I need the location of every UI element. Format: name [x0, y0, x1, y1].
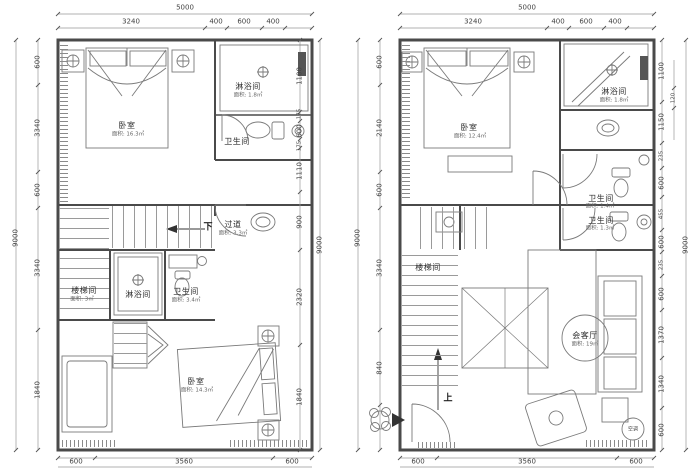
left-plan-bottom-window-1 — [62, 440, 116, 447]
dim-right-segment: 600 — [659, 287, 666, 300]
right-plan-living-furniture — [524, 250, 644, 447]
dim-top-segment: 3240 — [122, 19, 140, 26]
room-label-stairwell: 楼梯间 — [71, 287, 97, 295]
dim-right-segment: 235 — [659, 151, 665, 162]
room-label-shower-top: 淋浴间 — [235, 83, 261, 91]
room-area-bath-upper: 面积: 1.4㎡ — [586, 204, 615, 210]
room-area-shower: 面积: 1.8㎡ — [600, 98, 629, 104]
room-label-bath-upper: 卫生间 — [588, 195, 614, 203]
dim-top-segment: 3240 — [464, 19, 482, 26]
dim-left-segment: 840 — [377, 361, 384, 374]
dim-bottom-segment: 600 — [629, 459, 642, 466]
left-plan-corridor-stairs — [112, 206, 212, 248]
right-plan-bottom-window-2 — [586, 440, 648, 447]
dim-right-segment: 1100 — [297, 67, 304, 85]
dim-right-segment: 600 — [659, 176, 666, 189]
dim-right-segment: 1150 — [659, 113, 666, 131]
dim-right-segment: 175 — [297, 141, 303, 152]
dim-bottom-segment: 3560 — [175, 459, 193, 466]
dim-right-segment: 600 — [659, 235, 666, 248]
room-area-bath-lower: 面积: 1.3㎡ — [586, 226, 615, 232]
dim-left-segment: 600 — [377, 183, 384, 196]
room-label-bath-lower: 卫生间 — [588, 217, 614, 225]
dim-bottom-segment: 600 — [69, 459, 82, 466]
dim-right-segment: 235 — [659, 260, 665, 271]
right-plan-landing-stairs — [420, 207, 490, 249]
room-label-bath-top: 卫生间 — [224, 138, 250, 146]
room-area-bedroom-top: 面积: 16.3㎡ — [112, 132, 144, 138]
dim-right-total: 9000 — [317, 236, 324, 254]
room-area-bedroom-bottom: 面积: 14.3㎡ — [181, 388, 213, 394]
room-area-bath-mid: 面积: 3.4㎡ — [172, 298, 201, 304]
dim-left-segment: 600 — [35, 55, 42, 68]
dim-right-segment: 600 — [297, 124, 304, 137]
dim-left-segment: 1840 — [35, 381, 42, 399]
right-plan-washbasin — [533, 120, 619, 205]
dim-right-segment: 175 — [297, 109, 303, 120]
dim-bottom-segment: 600 — [285, 459, 298, 466]
dim-right-total: 9000 — [683, 236, 690, 254]
room-area-living: 面积: 19㎡ — [571, 342, 598, 348]
dim-right-wall: 120 — [671, 93, 677, 104]
dim-left-segment: 3340 — [35, 259, 42, 277]
dim-right-segment: 1370 — [659, 326, 666, 344]
dim-top-total: 5000 — [518, 5, 536, 12]
dim-top-segment: 600 — [237, 19, 250, 26]
room-label-bedroom-bottom: 卧室 — [188, 378, 205, 386]
room-area-stairwell: 面积: 3㎡ — [70, 297, 94, 303]
dim-top-total: 5000 — [176, 5, 194, 12]
dim-right-segment: 455 — [659, 209, 665, 220]
dim-bottom-segment: 3560 — [518, 459, 536, 466]
right-plan-bottom-window-1 — [418, 442, 456, 448]
right-plan-bath-upper-fixtures — [563, 154, 649, 197]
dim-left-segment: 600 — [35, 183, 42, 196]
dim-top-segment: 400 — [266, 19, 279, 26]
dim-right-segment: 1840 — [297, 388, 304, 406]
dim-right-segment: 2320 — [297, 288, 304, 306]
left-plan-window-hatch — [60, 45, 68, 203]
dim-top-segment: 400 — [209, 19, 222, 26]
dim-top-segment: 400 — [551, 19, 564, 26]
dim-top-segment: 400 — [608, 19, 621, 26]
dim-left-segment: 2140 — [377, 119, 384, 137]
left-plan-shower-mid — [114, 253, 162, 315]
left-plan-wardrobe — [62, 356, 112, 432]
room-label-shower-mid: 淋浴间 — [125, 291, 151, 299]
room-label-bedroom: 卧室 — [461, 124, 478, 132]
room-area-corridor: 面积: 3.3㎡ — [219, 231, 248, 237]
ceiling-fan-icon — [67, 55, 189, 67]
direction-label-up: 上 — [443, 395, 452, 404]
right-plan-bed — [402, 48, 534, 172]
dim-left-segment: 600 — [377, 55, 384, 68]
left-plan-lower-stairs — [114, 323, 147, 367]
dim-right-segment: 1110 — [297, 162, 304, 180]
room-label-stairwell: 楼梯间 — [415, 264, 441, 272]
left-plan-bottom-window-2 — [230, 440, 308, 447]
room-area-bedroom: 面积: 12.4㎡ — [454, 134, 486, 140]
right-plan-stair-treads — [402, 255, 458, 388]
dim-right-segment: 900 — [297, 215, 304, 228]
dim-left-segment: 3340 — [377, 259, 384, 277]
room-label-living: 会客厅 — [572, 332, 598, 340]
room-label-corridor: 过道 — [225, 221, 242, 229]
dim-left-segment: 3340 — [35, 119, 42, 137]
direction-label-down: 下 — [203, 224, 212, 233]
dim-right-segment: 600 — [659, 423, 666, 436]
dim-right-segment: 1100 — [659, 62, 666, 80]
dim-right-segment: 1340 — [659, 375, 666, 393]
room-label-shower: 淋浴间 — [601, 88, 627, 96]
dim-left-total: 9000 — [13, 229, 20, 247]
dim-left-total: 9000 — [355, 229, 362, 247]
dim-bottom-segment: 600 — [411, 459, 424, 466]
room-label-bath-mid: 卫生间 — [173, 288, 199, 296]
floor-plan-canvas: 5000 3240 400 600 400 9000 600 3340 600 … — [0, 0, 694, 473]
dim-top-segment: 600 — [579, 19, 592, 26]
ceiling-fan-icon — [406, 56, 530, 68]
ac-unit-label: 空调 — [628, 426, 638, 433]
room-label-bedroom-top: 卧室 — [119, 122, 136, 130]
room-area-shower-top: 面积: 1.8㎡ — [234, 93, 263, 99]
right-plan-window-hatch — [402, 45, 410, 200]
